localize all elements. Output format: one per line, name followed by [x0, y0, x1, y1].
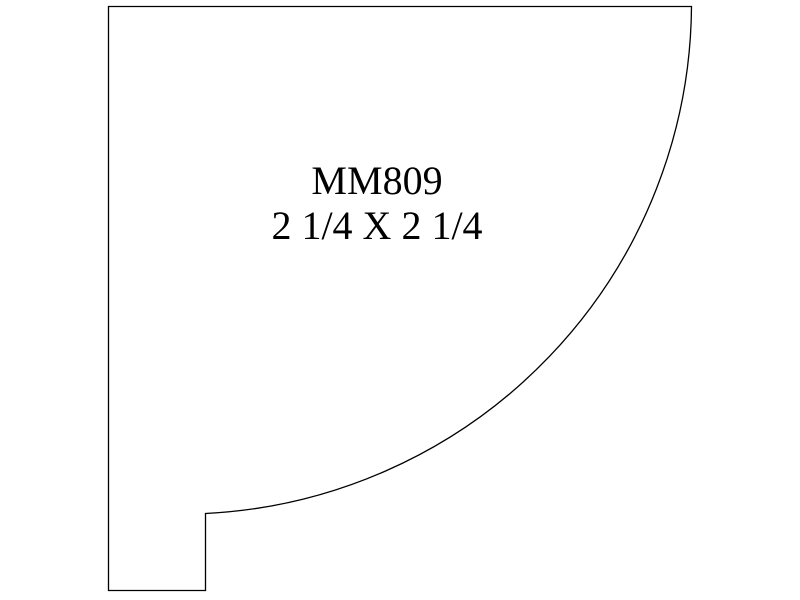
profile-code-label: MM809 — [311, 161, 442, 201]
molding-profile-drawing: MM809 2 1/4 X 2 1/4 — [0, 0, 800, 600]
profile-outline-path — [109, 7, 692, 591]
profile-outline-svg — [0, 0, 800, 600]
profile-size-label: 2 1/4 X 2 1/4 — [271, 206, 482, 246]
